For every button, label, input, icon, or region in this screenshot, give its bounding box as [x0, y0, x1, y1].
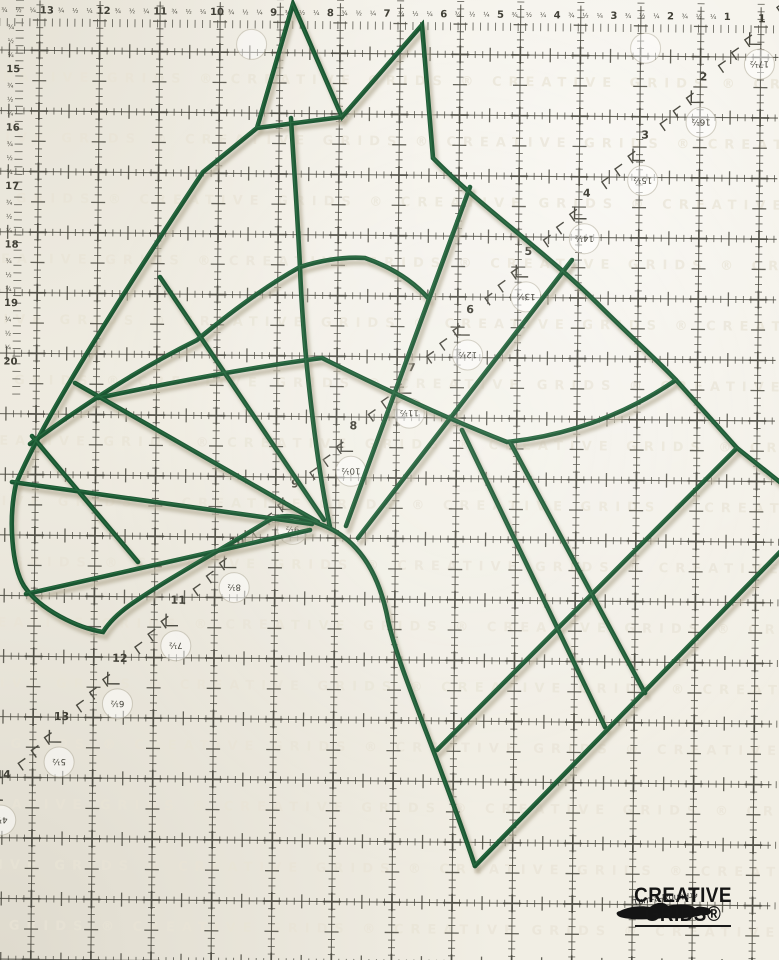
- wire-shadow: [15, 9, 779, 871]
- wire-main: [12, 4, 779, 866]
- wire-outline-head: [16, 4, 779, 484]
- wire-neck-rib-long: [437, 448, 737, 750]
- horse-head-wire-frame: [0, 0, 779, 960]
- wire-spoke-forehead: [291, 118, 330, 527]
- logo-brand-line2: GRIDS®: [607, 905, 760, 924]
- wire-sheen: [11, 3, 779, 865]
- creative-grids-logo: Turn-a-Round™ CREATIVE GRIDS®: [598, 886, 768, 960]
- wire-spoke-muzzle-top: [12, 482, 312, 524]
- photo-of-ruler-and-wire-form: CREATIVE GRIDS ® CREATIVE GRIDS ® CREATI…: [0, 0, 779, 960]
